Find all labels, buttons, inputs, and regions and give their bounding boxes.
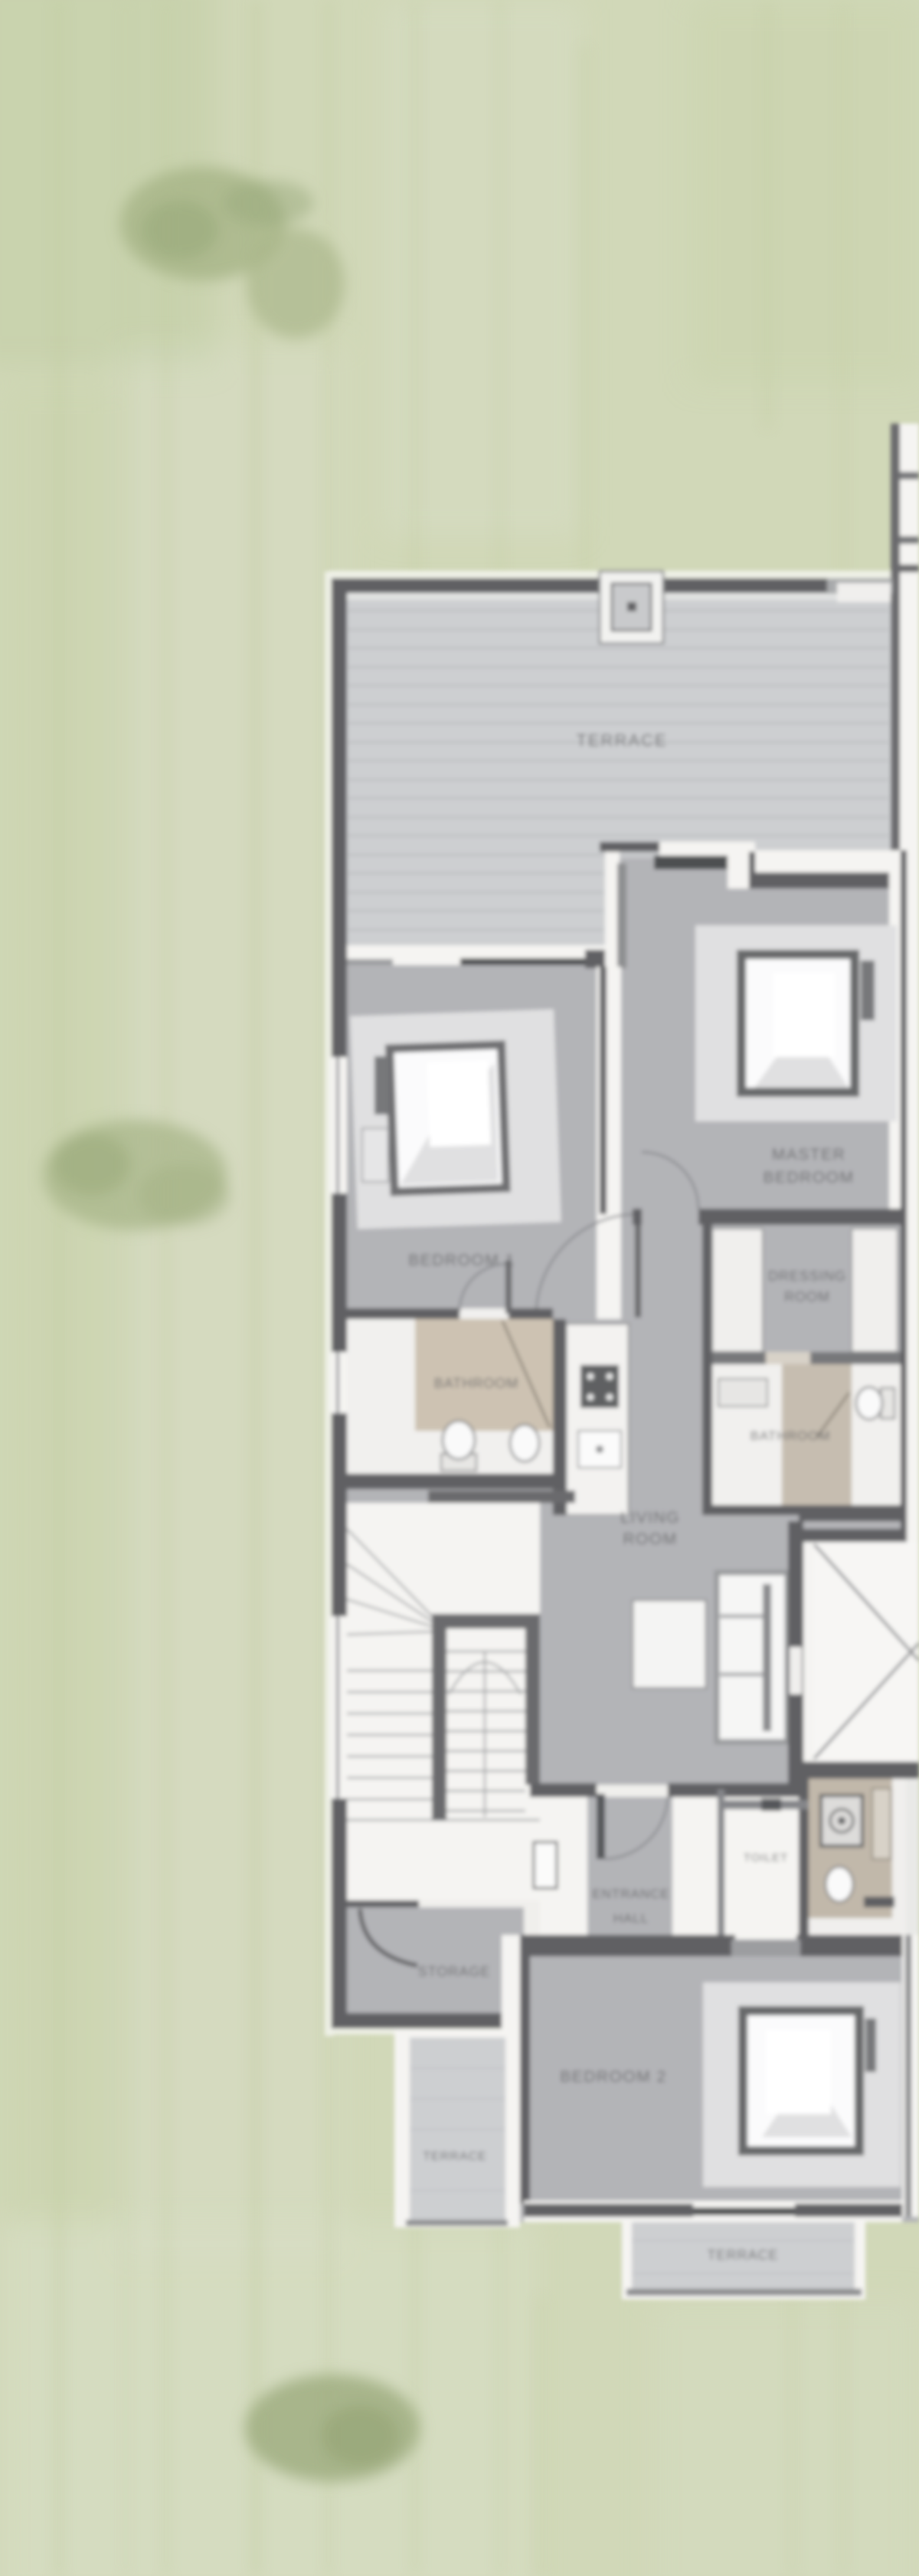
svg-text:TERRACE: TERRACE (576, 731, 667, 750)
svg-text:BEDROOM: BEDROOM (763, 1169, 854, 1187)
svg-text:DRESSING: DRESSING (768, 1268, 846, 1284)
svg-text:HALL: HALL (613, 1911, 649, 1926)
svg-text:TERRACE: TERRACE (423, 2150, 486, 2163)
svg-text:BEDROOM 2: BEDROOM 2 (560, 2068, 667, 2086)
svg-text:ROOM: ROOM (623, 1530, 677, 1548)
svg-text:BATHROOM: BATHROOM (434, 1376, 519, 1391)
svg-text:TERRACE: TERRACE (707, 2247, 778, 2263)
svg-text:STORAGE: STORAGE (418, 1964, 491, 1979)
svg-text:ROOM: ROOM (784, 1289, 830, 1304)
svg-text:MASTER: MASTER (772, 1146, 846, 1164)
svg-text:ENTRANCE: ENTRANCE (592, 1887, 670, 1901)
svg-text:TOILET: TOILET (744, 1851, 788, 1864)
svg-text:LIVING: LIVING (620, 1509, 680, 1527)
svg-text:BEDROOM 1: BEDROOM 1 (408, 1252, 515, 1269)
svg-text:BATHROOM: BATHROOM (751, 1429, 831, 1443)
